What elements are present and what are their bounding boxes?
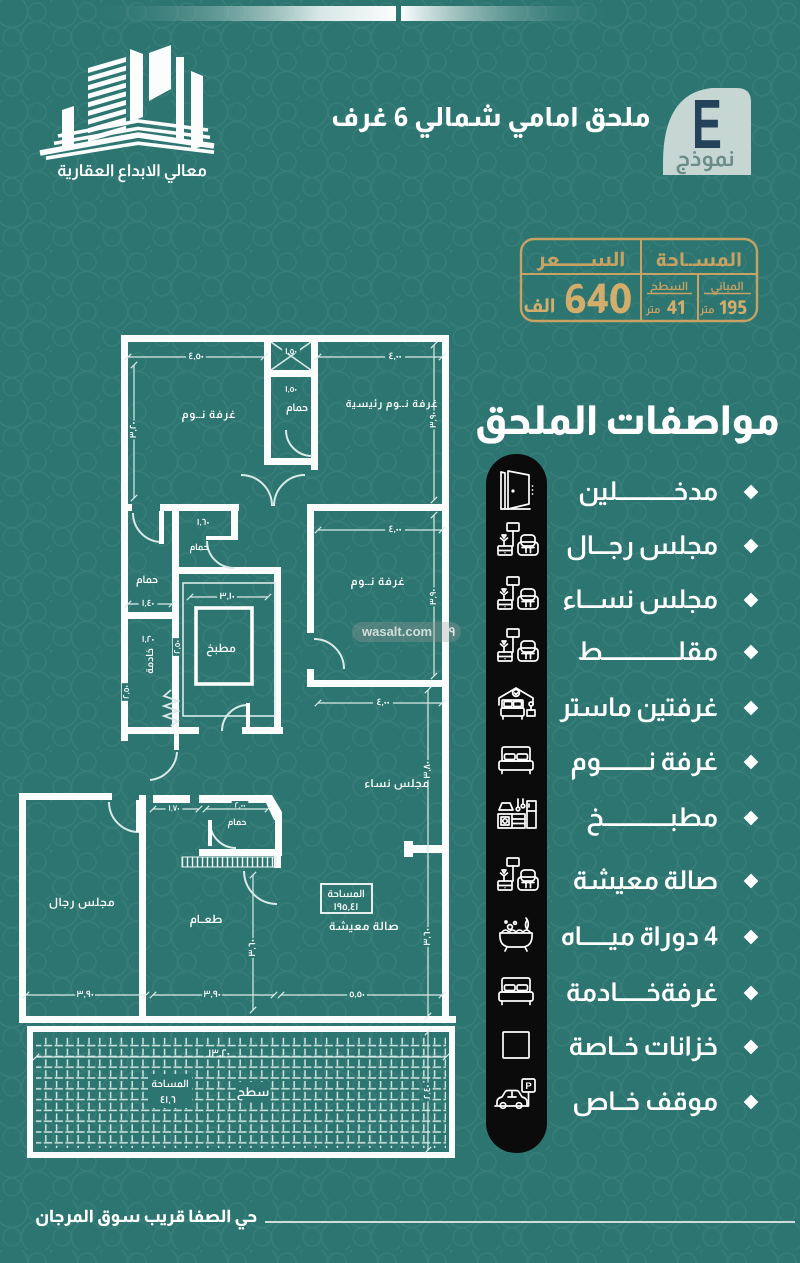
svg-text:E: E: [692, 86, 722, 163]
svg-text:wasalt.com: wasalt.com: [361, 624, 432, 639]
svg-text:P: P: [525, 1081, 532, 1092]
